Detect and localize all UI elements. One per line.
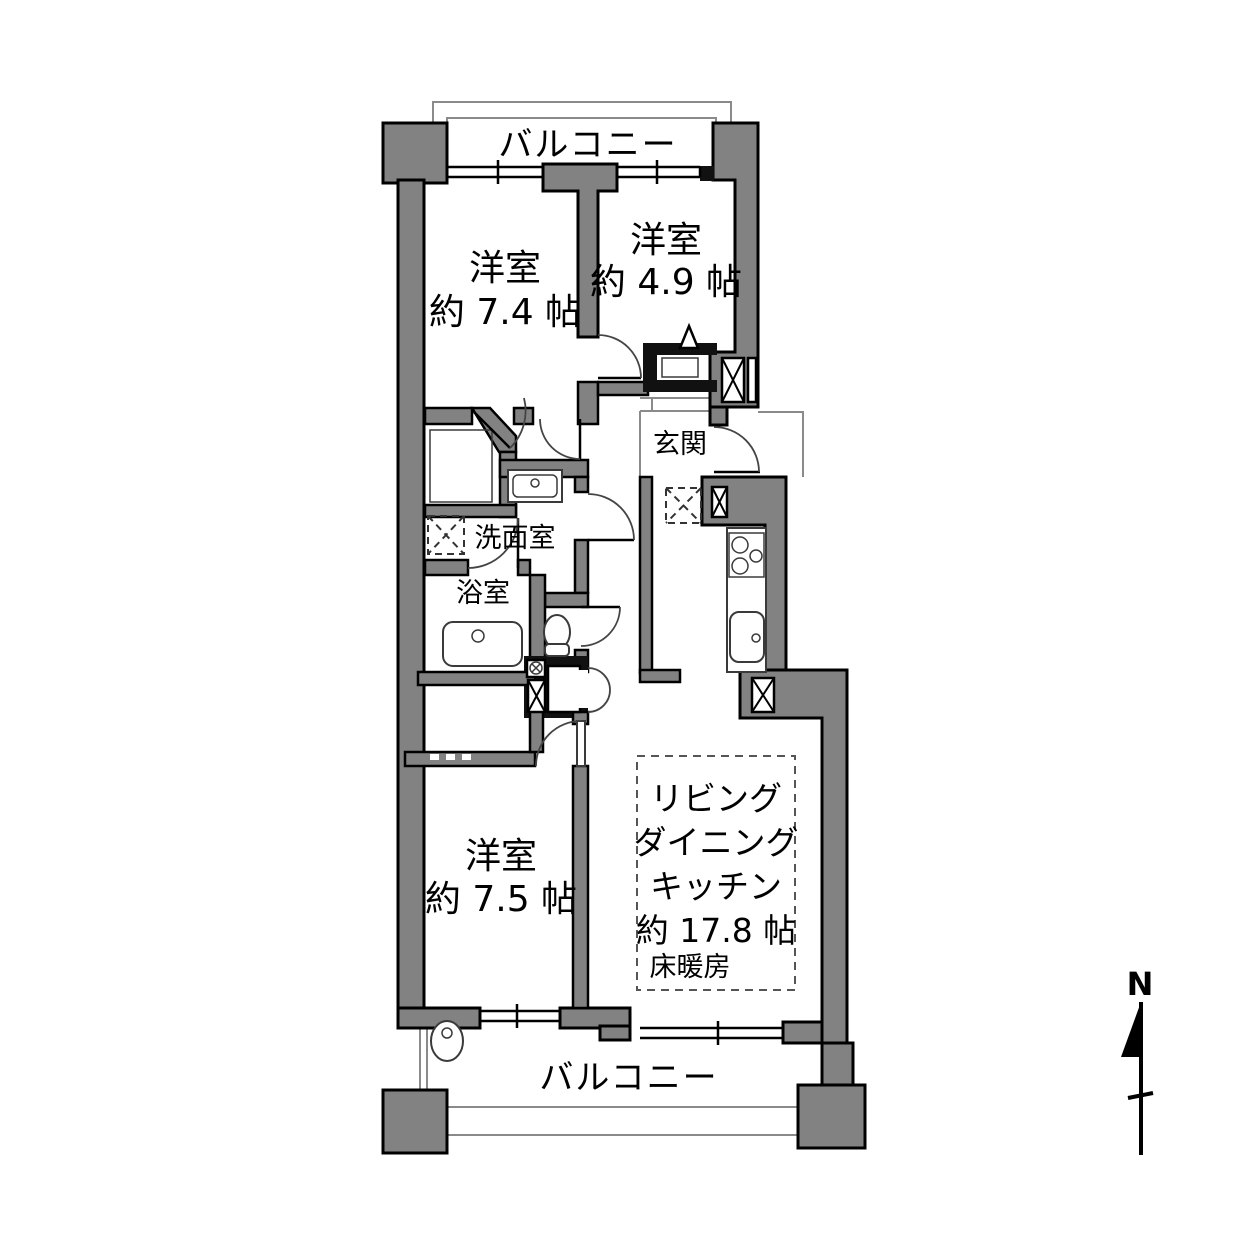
door-entrance-swing (714, 427, 759, 472)
bathtub (443, 622, 522, 666)
entrance-jamb (710, 407, 727, 425)
toilet-base (545, 644, 569, 656)
meter-slit (748, 358, 756, 402)
compass: N (1121, 965, 1153, 1155)
bedroom74-size: 約 7.4 帖 (429, 292, 581, 333)
closet-49-door-mark (680, 326, 698, 348)
balcony-bottom-label: バルコニー (539, 1058, 718, 1098)
balcony-top-label: バルコニー (498, 125, 677, 165)
door-storage-swing (588, 668, 610, 712)
closet-74-interior (430, 430, 492, 502)
entrance-label: 玄関 (653, 429, 707, 460)
bedroom49-name: 洋室 (630, 220, 702, 261)
compass-arrowhead (1121, 1002, 1141, 1057)
compass-tick (1128, 1093, 1153, 1098)
ldk-label-line1: リビング (650, 779, 782, 818)
ldk-label-line2: ダイニング (634, 823, 799, 862)
wall-ldk-bottom-right (783, 1022, 822, 1043)
bedroom74-name: 洋室 (469, 248, 541, 289)
wall-left (398, 180, 424, 1028)
floor-heating-label: 床暖房 (650, 952, 731, 983)
bedroom75-name: 洋室 (465, 836, 537, 877)
pillar-bottom-left (383, 1090, 447, 1153)
door-toilet-swing (581, 607, 620, 646)
door-washroom-swing (588, 494, 634, 540)
ldk-label-line3: キッチン (650, 867, 782, 906)
door-bedroom49-swing (598, 335, 641, 378)
bathroom-label: 浴室 (456, 578, 510, 609)
pillar-bottom-right (798, 1085, 865, 1148)
bedroom49-size: 約 4.9 帖 (590, 262, 742, 303)
balcony-slop-sink (431, 1021, 463, 1061)
door-ldk-leaf (577, 721, 585, 766)
door-bedroom74-swing (540, 419, 580, 459)
washroom-label: 洗面室 (475, 523, 556, 554)
ldk-size: 約 17.8 帖 (636, 911, 796, 950)
pillar-top-left (383, 123, 447, 183)
floor-plan: バルコニー 洋室 約 7.4 帖 洋室 約 4.9 帖 玄関 洗面室 浴室 洋室… (0, 0, 1252, 1252)
bedroom75-size: 約 7.5 帖 (425, 879, 577, 920)
wall-right-connector (822, 1043, 853, 1087)
kitchen-sink (730, 612, 764, 662)
wall-bottom-step (600, 1026, 630, 1040)
storage-cabinet (548, 666, 580, 712)
compass-north-label: N (1127, 965, 1154, 1003)
wall-top-stub (700, 166, 714, 181)
